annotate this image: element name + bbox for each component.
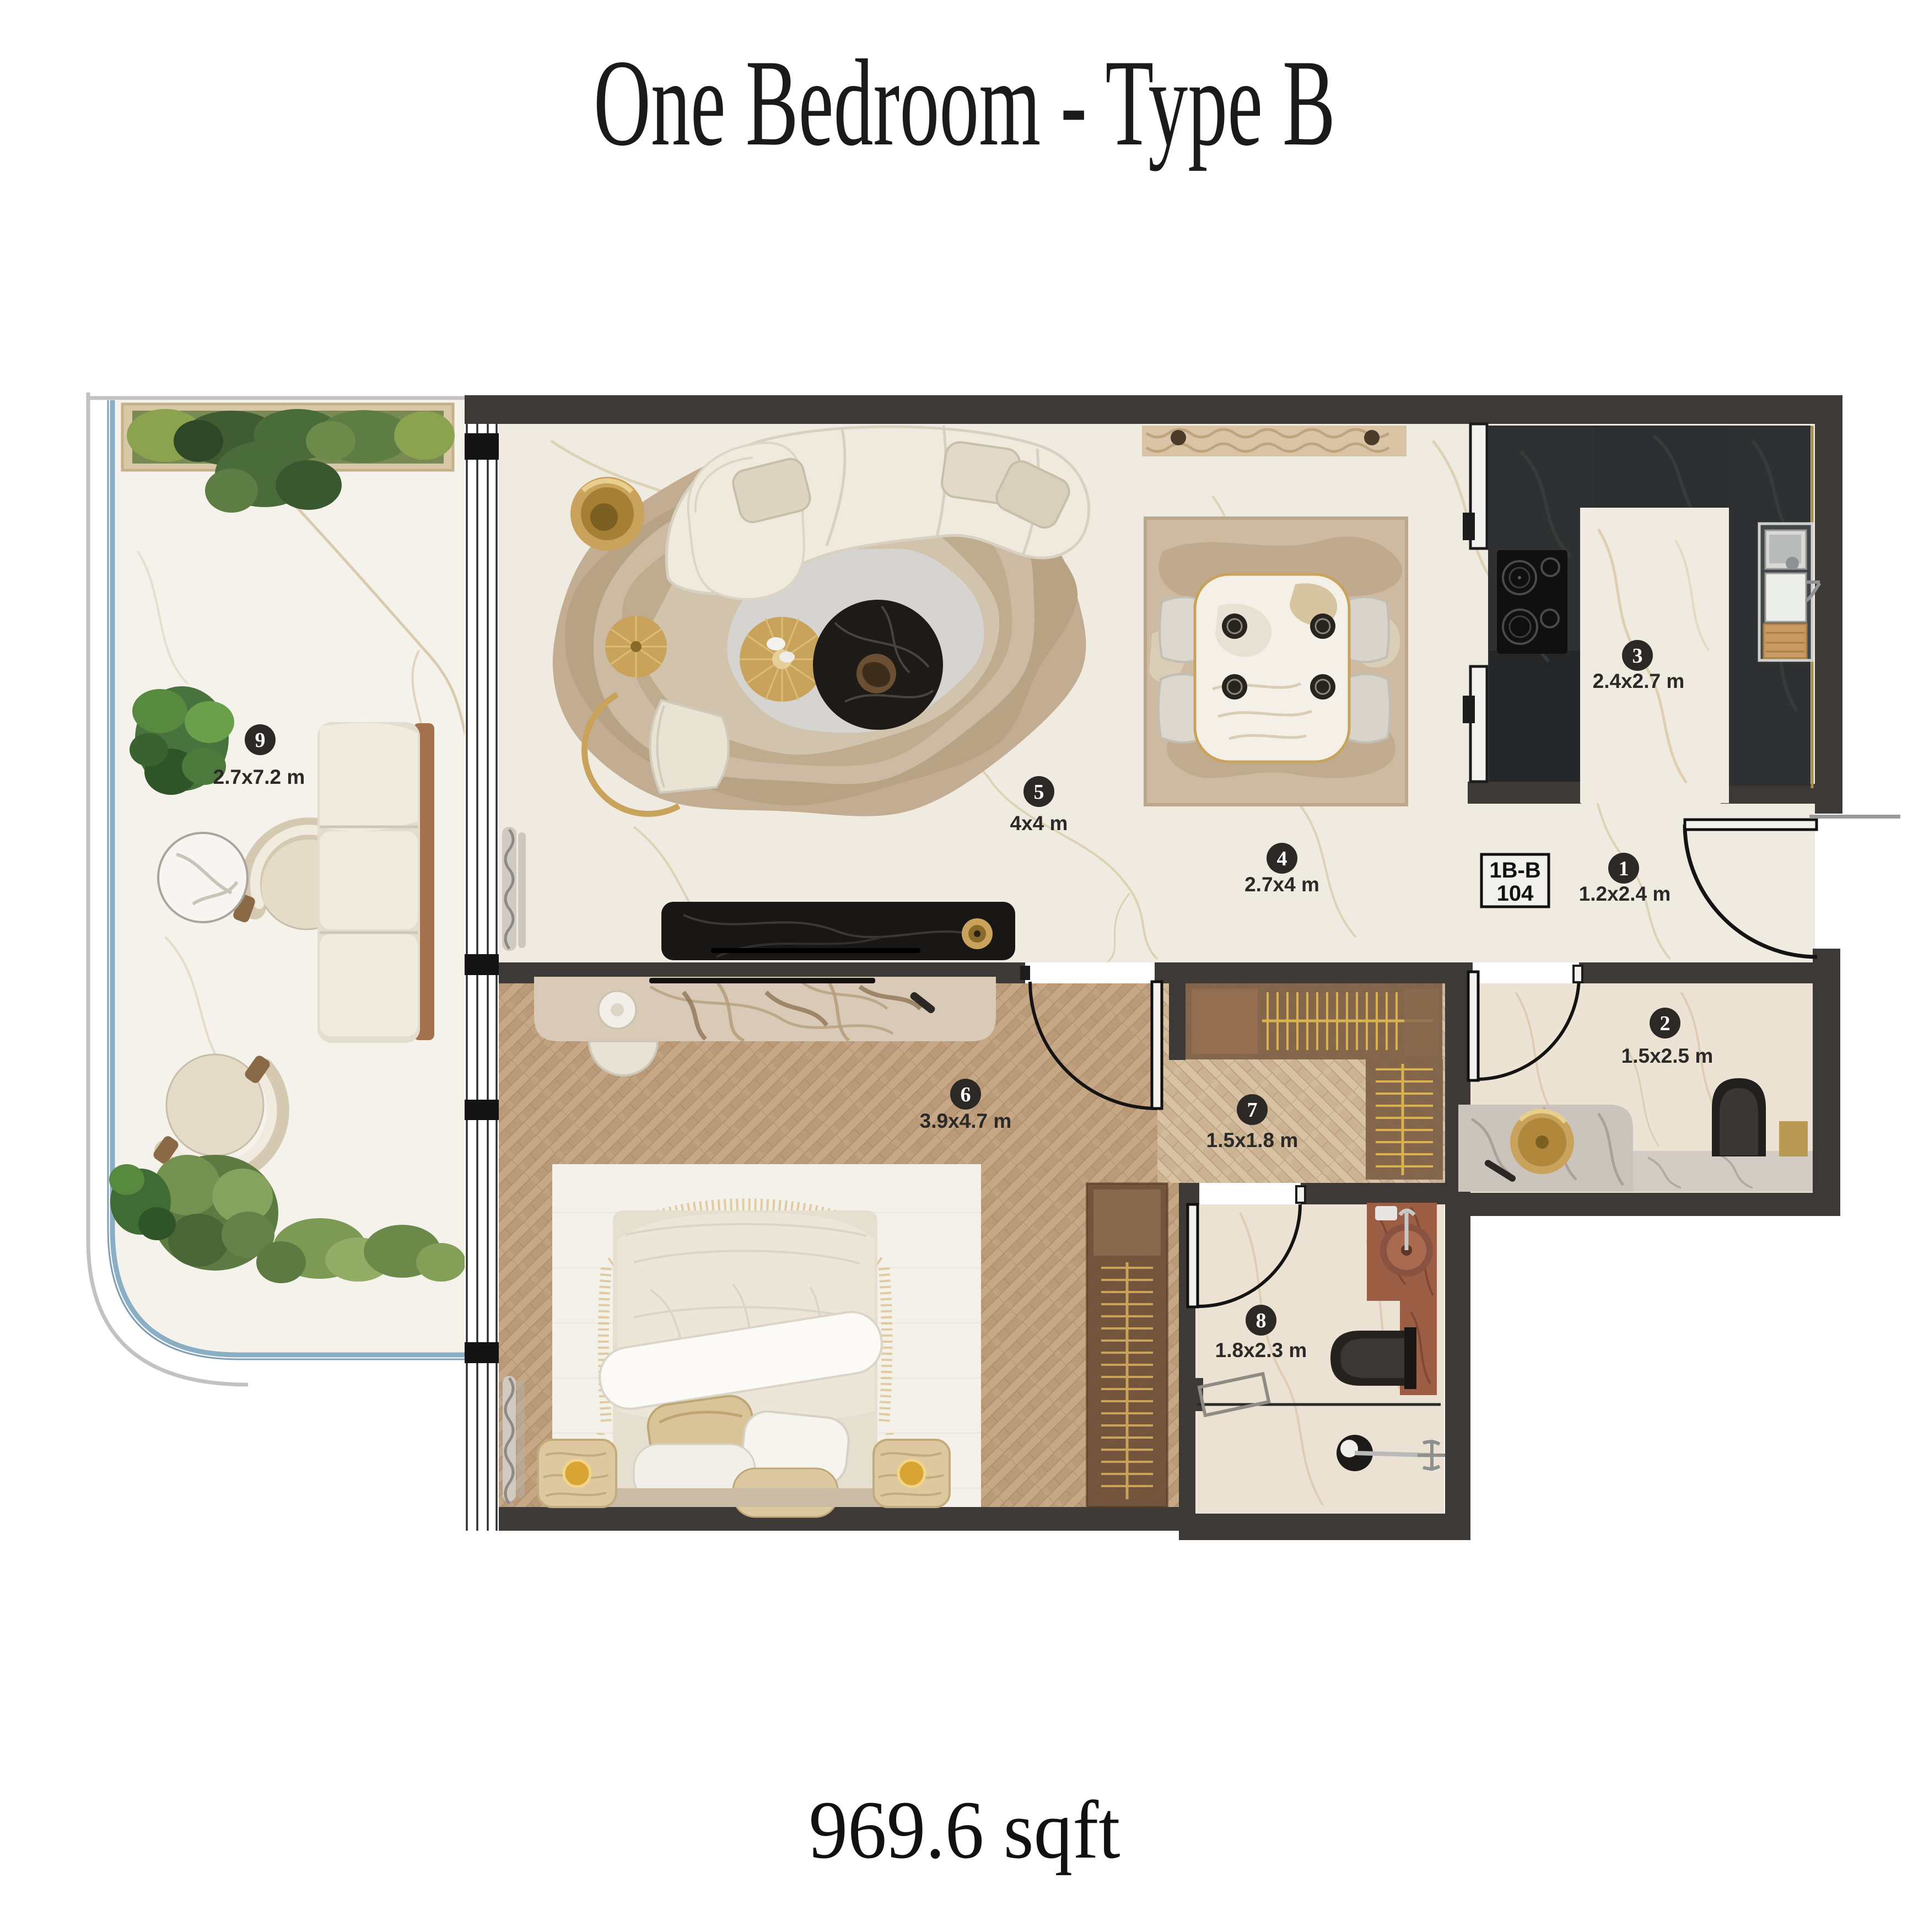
svg-text:104: 104 bbox=[1497, 881, 1534, 906]
svg-text:4: 4 bbox=[1277, 847, 1287, 870]
svg-text:One Bedroom - Type B: One Bedroom - Type B bbox=[594, 34, 1335, 171]
svg-text:6: 6 bbox=[961, 1083, 971, 1106]
svg-text:1.8x2.3 m: 1.8x2.3 m bbox=[1215, 1339, 1307, 1361]
svg-text:9: 9 bbox=[255, 729, 266, 752]
svg-text:969.6 sqft: 969.6 sqft bbox=[809, 1784, 1120, 1876]
svg-text:2.4x2.7 m: 2.4x2.7 m bbox=[1593, 670, 1685, 692]
svg-text:1.5x1.8 m: 1.5x1.8 m bbox=[1206, 1129, 1298, 1151]
svg-text:5: 5 bbox=[1034, 781, 1044, 804]
svg-text:1.2x2.4 m: 1.2x2.4 m bbox=[1579, 882, 1671, 905]
svg-text:8: 8 bbox=[1256, 1309, 1267, 1332]
svg-text:3: 3 bbox=[1632, 644, 1643, 668]
svg-text:7: 7 bbox=[1247, 1099, 1258, 1122]
svg-text:1B-B: 1B-B bbox=[1489, 858, 1540, 882]
svg-text:4x4 m: 4x4 m bbox=[1010, 812, 1068, 835]
svg-text:1: 1 bbox=[1619, 857, 1629, 880]
svg-text:2.7x7.2 m: 2.7x7.2 m bbox=[213, 766, 305, 788]
svg-text:2: 2 bbox=[1660, 1012, 1671, 1035]
svg-text:3.9x4.7 m: 3.9x4.7 m bbox=[920, 1110, 1012, 1132]
svg-text:1.5x2.5 m: 1.5x2.5 m bbox=[1621, 1045, 1714, 1067]
svg-text:2.7x4 m: 2.7x4 m bbox=[1244, 873, 1319, 896]
